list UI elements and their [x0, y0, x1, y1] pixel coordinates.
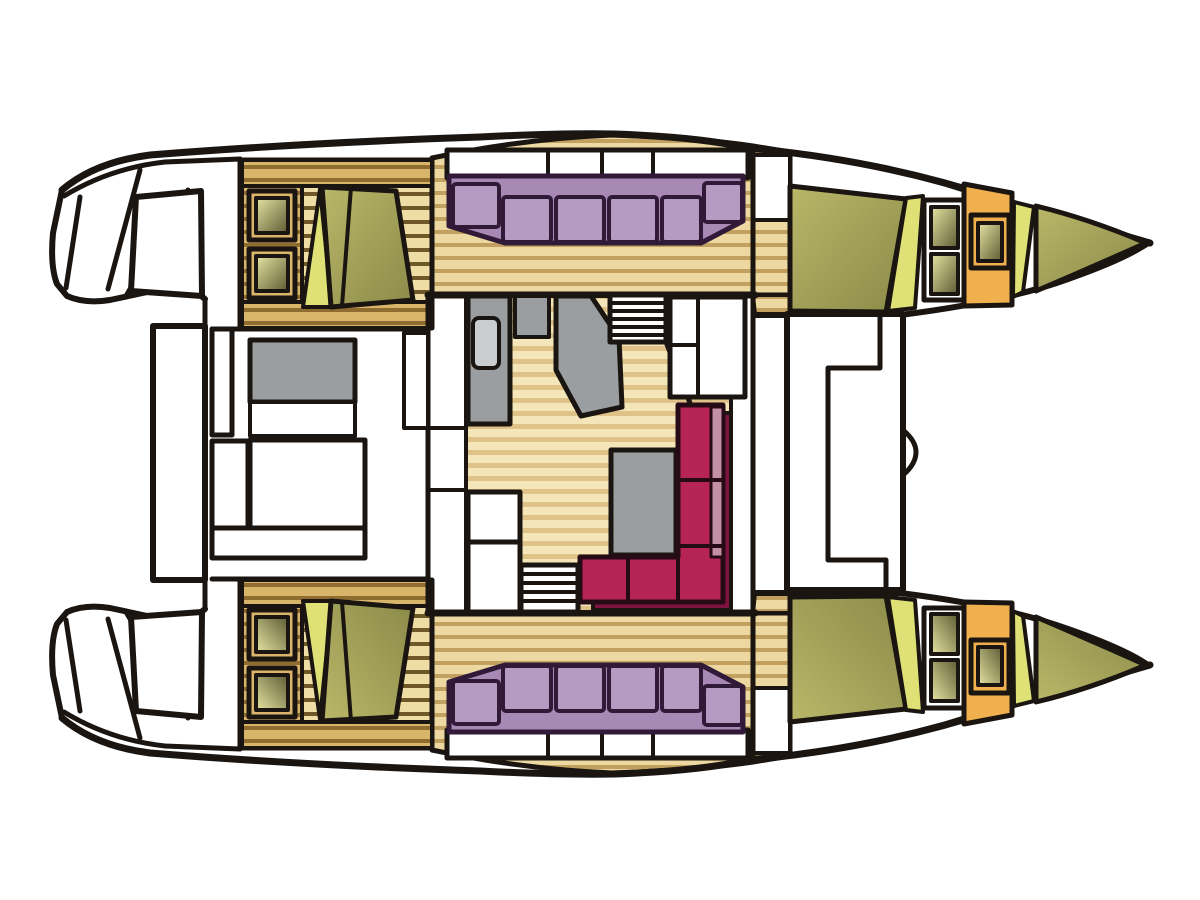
- nav-desk: [468, 492, 520, 542]
- stern-gunwale-line: [64, 159, 240, 196]
- fwd-hatch-glass-2: [931, 254, 958, 294]
- settee-cushion-3: [609, 666, 657, 711]
- fwd-hatch-glass-1: [931, 207, 958, 248]
- cockpit-bench-lower: [212, 441, 248, 528]
- fwd-hatch-glass-1: [931, 660, 958, 701]
- fwd-cabin-bed: [790, 596, 906, 722]
- helm-seat: [131, 612, 202, 717]
- fwd-hatch-glass-2: [931, 614, 958, 654]
- stern-step-line-1: [66, 197, 80, 288]
- aft-cabin-bed: [322, 601, 413, 721]
- settee-cushion-2: [556, 666, 604, 711]
- aft-cabin-bed: [322, 187, 413, 307]
- foredeck-door-panel: [787, 314, 903, 590]
- settee-cushion-3: [609, 197, 657, 242]
- cockpit-table-bench: [250, 402, 355, 436]
- settee-corner-cushion-right: [704, 686, 742, 725]
- nav-seat: [468, 542, 520, 612]
- cockpit-table: [250, 340, 355, 402]
- bow-peak-cushion: [1036, 206, 1146, 291]
- stern-step-line-1: [66, 620, 80, 711]
- settee-corner-cushion-left: [453, 184, 499, 227]
- bow-peak-cushion: [1036, 617, 1146, 702]
- fwd-window-cell: [753, 155, 790, 220]
- cockpit-front-bench: [212, 528, 365, 558]
- hatch-glass-2: [256, 256, 288, 291]
- settee-corner-cushion-left: [453, 681, 499, 724]
- hatch-glass-1: [256, 198, 288, 233]
- aft-cabin-band-top: [242, 160, 432, 186]
- cockpit-bench-upper: [212, 329, 232, 435]
- settee-corner-cushion-right: [704, 183, 742, 222]
- hatch-glass-1: [256, 675, 288, 710]
- hatch-glass-2: [256, 617, 288, 652]
- galley-block: [515, 296, 549, 337]
- settee-cushion-4: [662, 197, 701, 242]
- aft-cabin-band-top: [242, 722, 432, 748]
- bow-wardrobe-glass: [978, 647, 1002, 685]
- bow-wardrobe-glass: [978, 223, 1002, 261]
- cockpit-crossbeam: [153, 326, 205, 580]
- bridgedeck: [153, 295, 916, 612]
- cockpit-seat-block: [250, 440, 365, 528]
- sideboard-locker: [404, 333, 428, 428]
- settee-cushion-4: [662, 666, 701, 711]
- galley-sink: [473, 318, 499, 368]
- boat-floor-plan-page: [0, 0, 1200, 900]
- fwd-window-cell: [753, 688, 790, 753]
- settee-cushion-2: [556, 197, 604, 242]
- boat-floor-plan: [0, 0, 1200, 900]
- helm-seat: [131, 191, 202, 296]
- bow-wedge: [1013, 611, 1034, 706]
- stern-gunwale-line: [64, 712, 240, 749]
- bow-wedge: [1013, 202, 1034, 297]
- settee-cushion-1: [503, 666, 551, 711]
- settee-cushion-1: [503, 197, 551, 242]
- salon-table: [611, 450, 676, 555]
- fwd-cabin-bed: [790, 186, 906, 312]
